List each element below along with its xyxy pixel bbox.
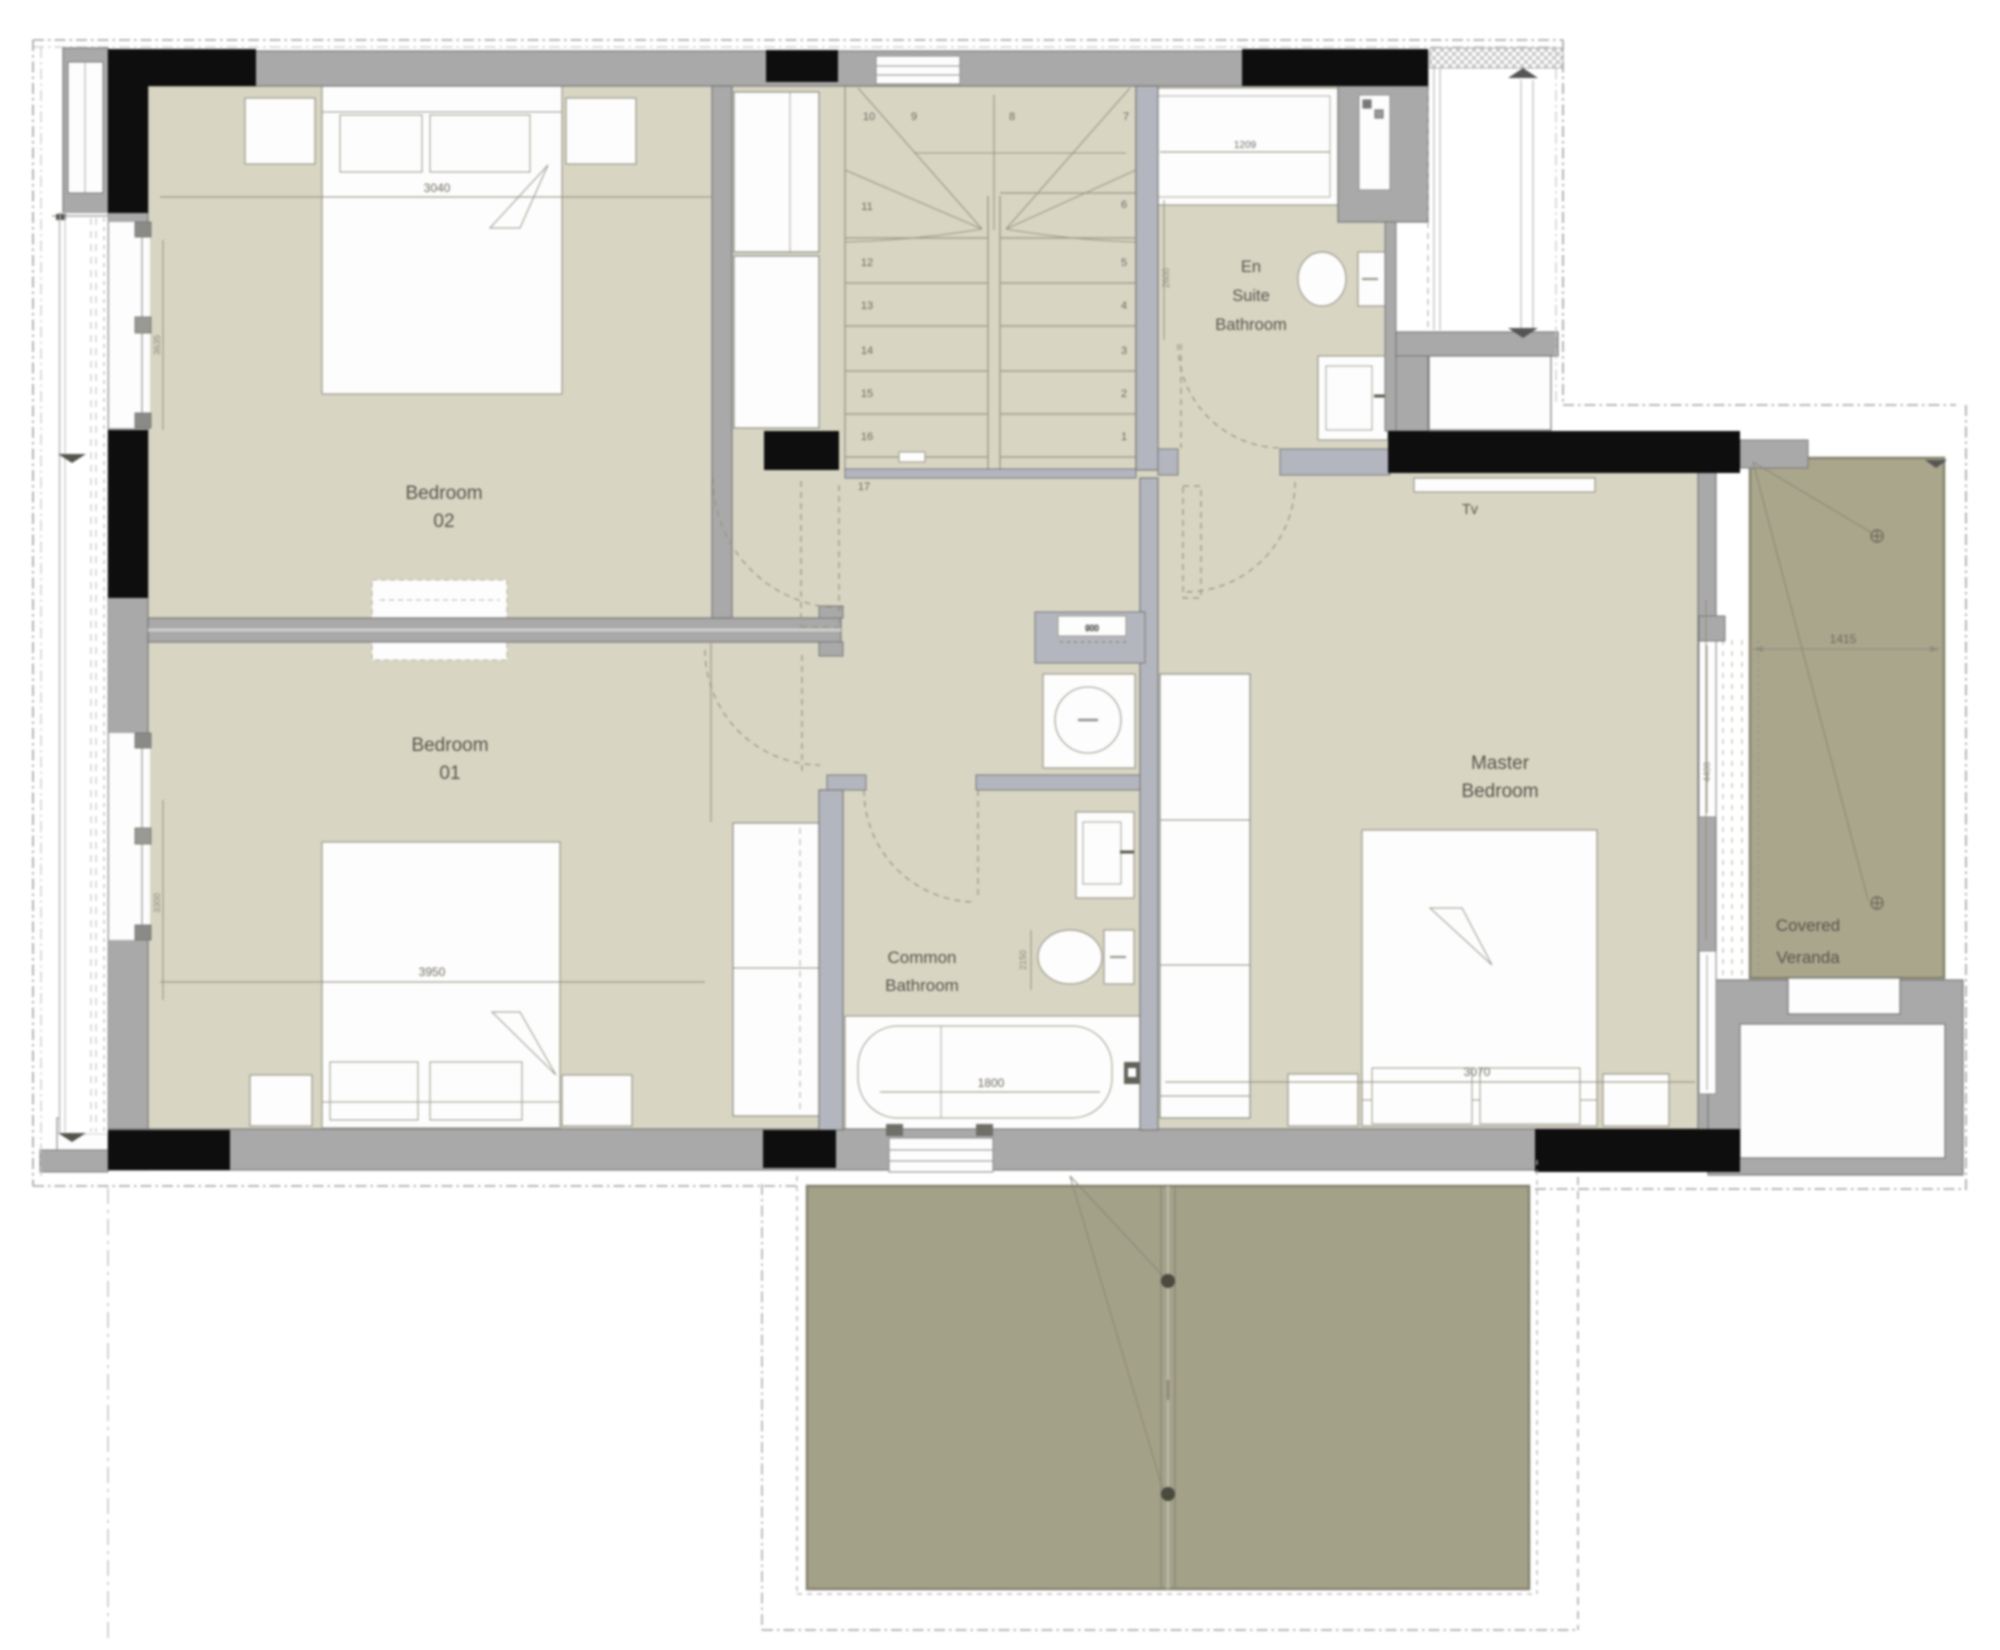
svg-text:Common: Common	[888, 948, 957, 967]
svg-text:900: 900	[1085, 624, 1099, 633]
svg-text:7: 7	[1123, 111, 1129, 123]
svg-text:Covered: Covered	[1776, 916, 1840, 935]
svg-text:En: En	[1241, 258, 1261, 276]
svg-text:2150: 2150	[1018, 950, 1028, 970]
svg-text:10: 10	[863, 111, 875, 123]
svg-text:1209: 1209	[1234, 140, 1257, 151]
svg-text:9: 9	[911, 111, 917, 123]
svg-text:14: 14	[861, 345, 873, 357]
svg-text:1: 1	[1121, 431, 1127, 443]
svg-text:3070: 3070	[1464, 1065, 1491, 1079]
svg-text:5: 5	[1121, 257, 1127, 269]
svg-text:1415: 1415	[1830, 632, 1857, 646]
svg-text:Tv: Tv	[1462, 502, 1479, 518]
svg-text:3300: 3300	[152, 893, 162, 913]
svg-text:16: 16	[861, 431, 873, 443]
svg-text:13: 13	[861, 300, 873, 312]
svg-text:01: 01	[439, 763, 460, 784]
svg-text:3040: 3040	[424, 181, 451, 195]
svg-text:Bathroom: Bathroom	[885, 976, 959, 995]
svg-text:8: 8	[1009, 111, 1015, 123]
svg-text:Bedroom: Bedroom	[1461, 781, 1538, 802]
svg-text:3: 3	[1121, 345, 1127, 357]
svg-text:Suite: Suite	[1232, 287, 1270, 305]
svg-text:4408: 4408	[1702, 762, 1712, 782]
svg-text:15: 15	[861, 388, 873, 400]
svg-text:Master: Master	[1471, 753, 1530, 774]
svg-text:12: 12	[861, 257, 873, 269]
svg-text:Veranda: Veranda	[1776, 948, 1840, 967]
svg-text:1800: 1800	[978, 1076, 1005, 1090]
svg-text:3635: 3635	[152, 335, 162, 355]
svg-text:2600: 2600	[1161, 268, 1171, 288]
svg-text:4: 4	[1121, 300, 1127, 312]
svg-text:2: 2	[1121, 388, 1127, 400]
svg-text:3950: 3950	[419, 965, 446, 979]
svg-text:02: 02	[433, 511, 454, 532]
svg-text:6: 6	[1121, 199, 1127, 211]
svg-text:17: 17	[858, 481, 870, 493]
svg-text:Bedroom: Bedroom	[411, 735, 488, 756]
svg-text:Bedroom: Bedroom	[405, 483, 482, 504]
svg-text:11: 11	[861, 201, 872, 213]
svg-text:Bathroom: Bathroom	[1215, 316, 1287, 334]
